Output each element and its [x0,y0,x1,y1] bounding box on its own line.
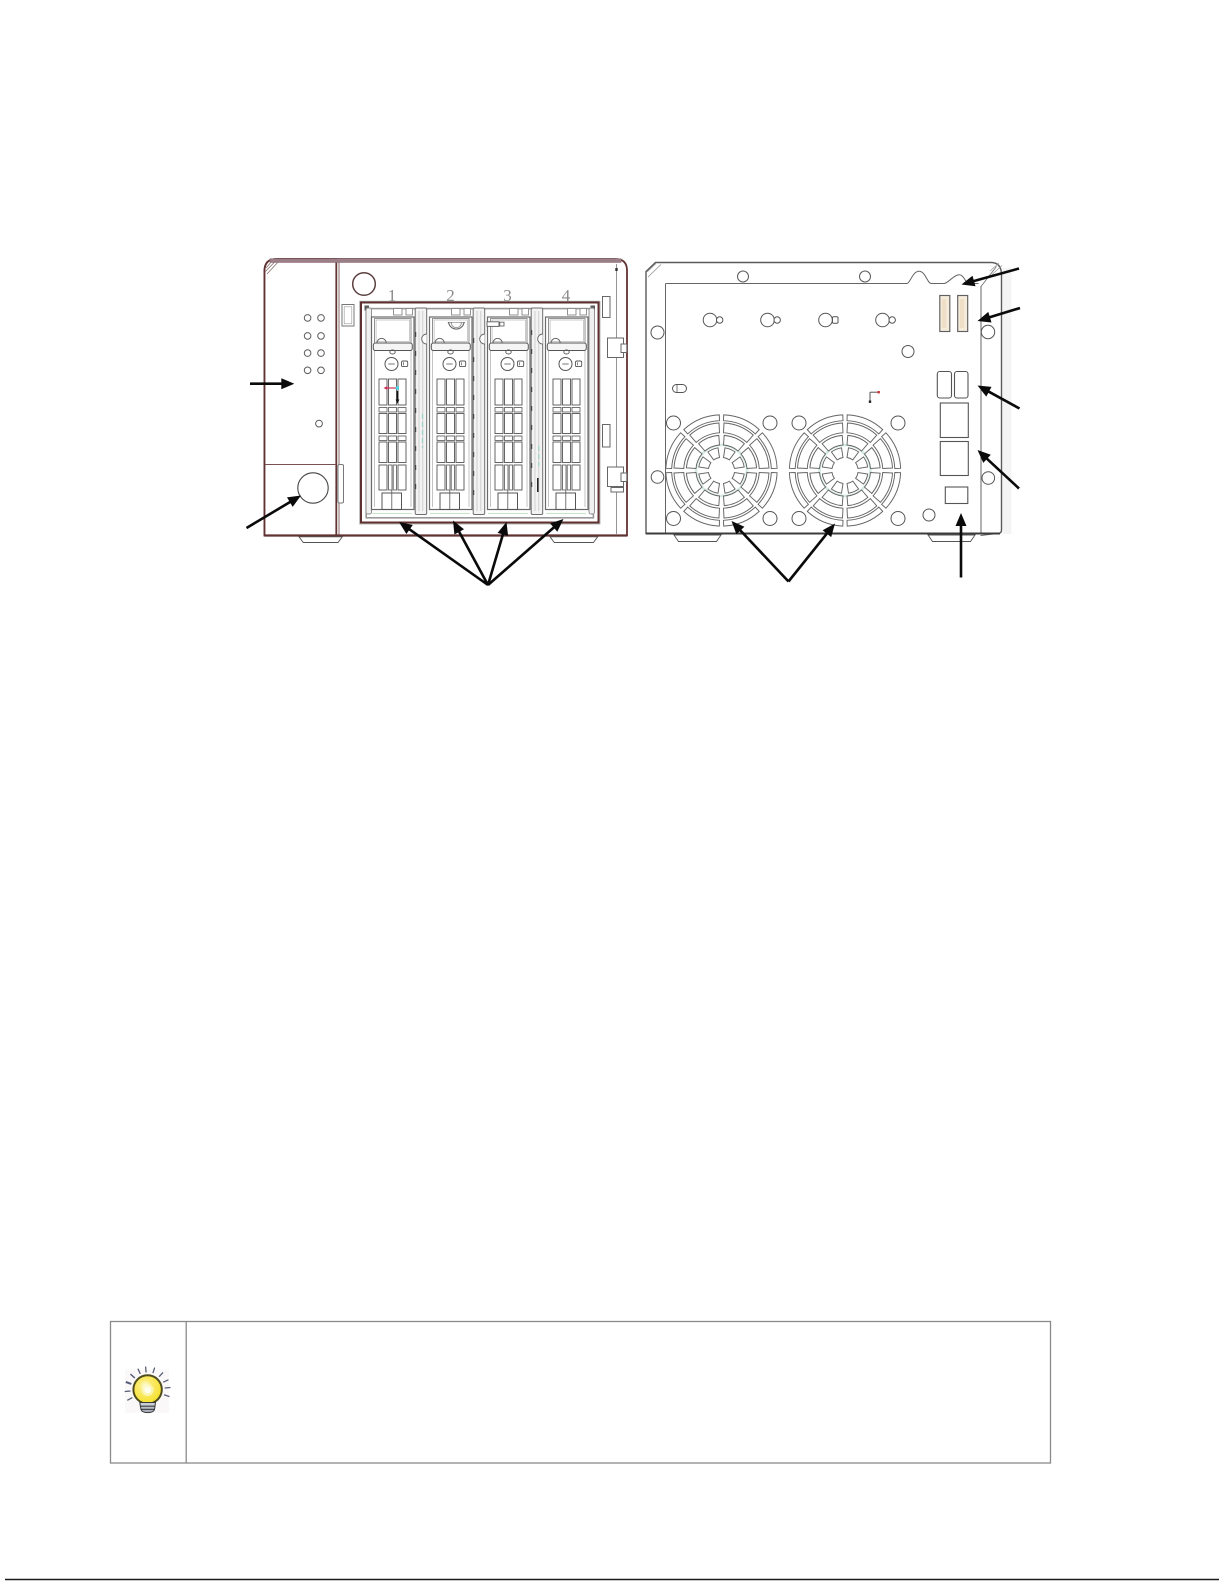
svg-text:1: 1 [388,286,397,305]
svg-text:4: 4 [562,286,571,305]
svg-text:2: 2 [446,286,455,305]
svg-text:3: 3 [503,286,512,305]
